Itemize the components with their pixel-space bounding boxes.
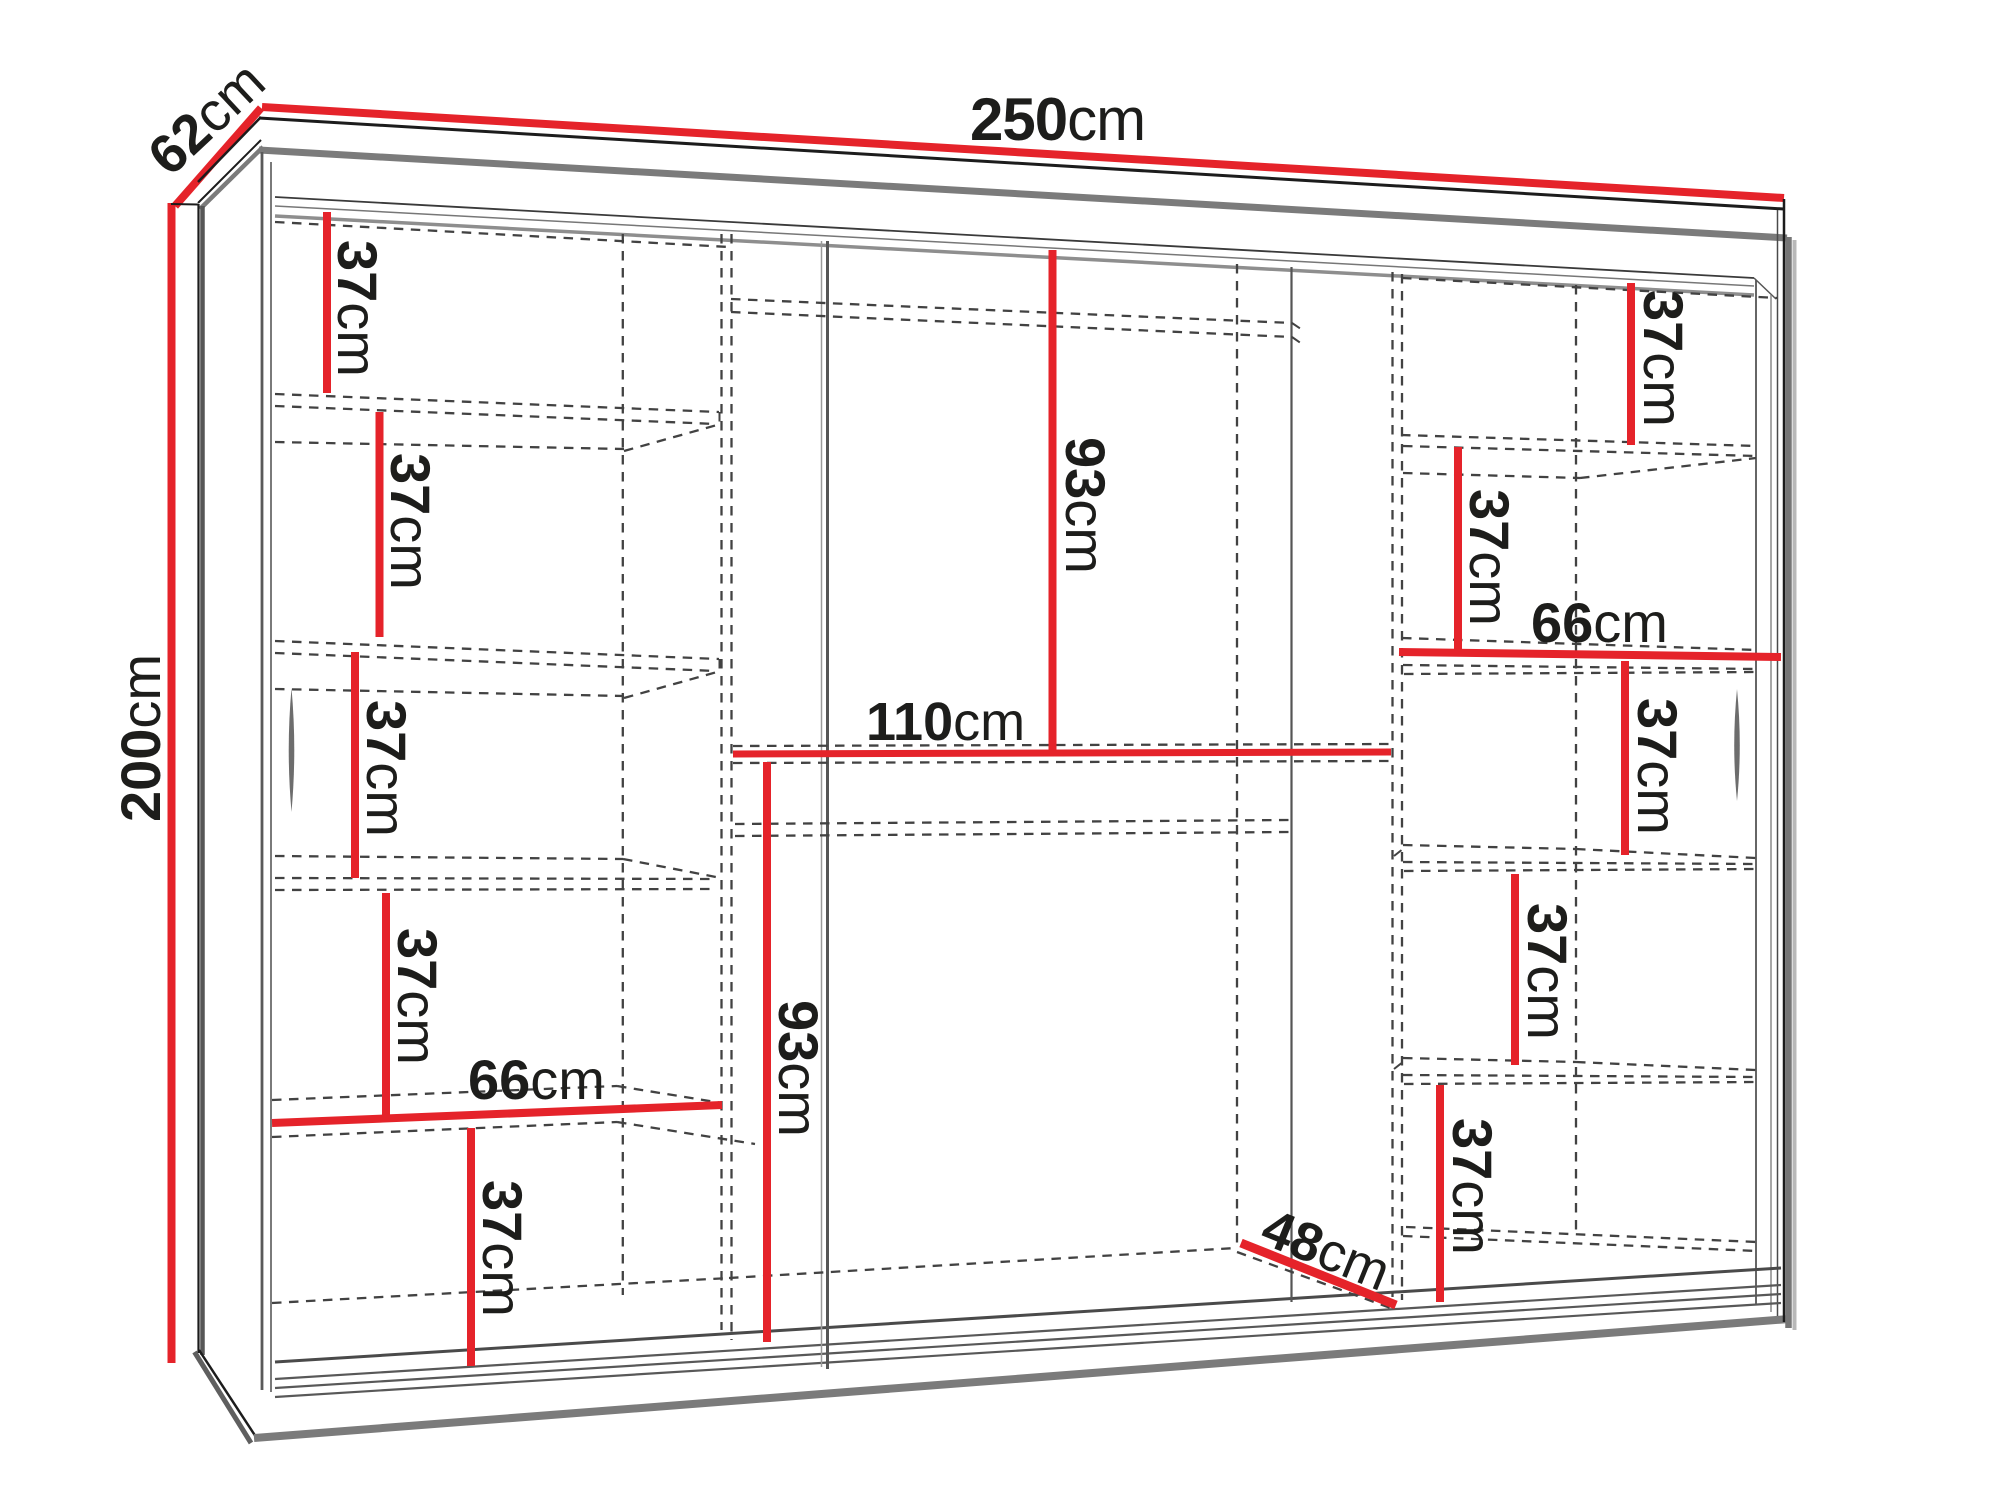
svg-text:250cm: 250cm <box>970 86 1145 153</box>
svg-text:66cm: 66cm <box>1531 591 1668 654</box>
svg-text:110cm: 110cm <box>866 692 1025 752</box>
svg-text:93cm: 93cm <box>1054 437 1117 574</box>
svg-text:37cm: 37cm <box>1632 290 1695 427</box>
svg-text:37cm: 37cm <box>379 453 442 590</box>
svg-text:200cm: 200cm <box>109 654 172 822</box>
svg-text:37cm: 37cm <box>326 240 389 377</box>
svg-text:37cm: 37cm <box>1458 489 1521 626</box>
svg-text:37cm: 37cm <box>386 928 449 1065</box>
svg-text:37cm: 37cm <box>1626 698 1689 835</box>
svg-text:37cm: 37cm <box>1516 903 1579 1040</box>
svg-text:66cm: 66cm <box>468 1048 605 1111</box>
svg-text:93cm: 93cm <box>767 1000 830 1137</box>
svg-text:37cm: 37cm <box>355 700 418 837</box>
svg-text:37cm: 37cm <box>1441 1118 1504 1255</box>
svg-text:37cm: 37cm <box>471 1180 534 1317</box>
